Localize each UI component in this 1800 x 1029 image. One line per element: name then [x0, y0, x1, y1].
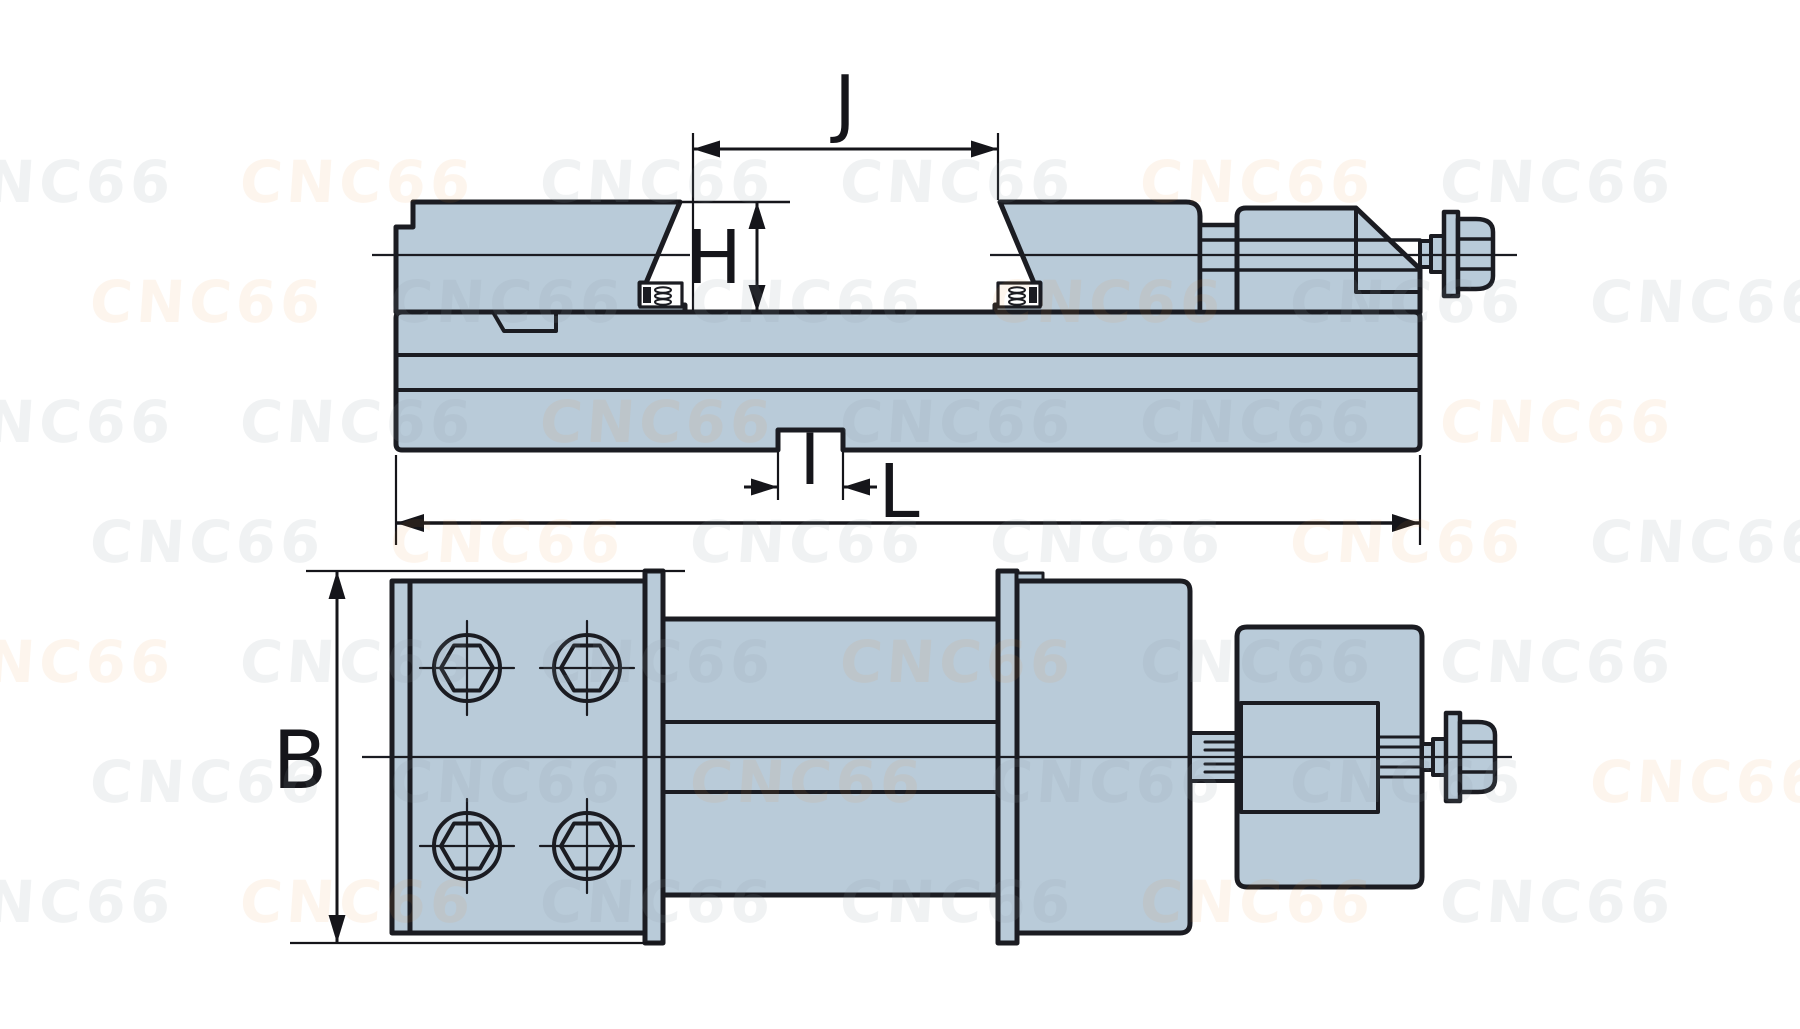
- movable-jaw-clamp-block: [1029, 287, 1037, 303]
- dim-b-arrow-down: [329, 915, 346, 943]
- dim-label-i: I: [800, 419, 821, 501]
- dim-j-arrow-right: [971, 141, 998, 158]
- dim-l-arrow-right: [1392, 514, 1420, 532]
- dim-h-arrow-up: [749, 202, 766, 229]
- fixed-jaw-clamp-block: [643, 287, 651, 303]
- dim-b-arrow-up: [329, 571, 346, 599]
- vise-technical-drawing: J H I L: [0, 0, 1800, 1029]
- vise-drawing-page: J H I L: [0, 0, 1800, 1029]
- dim-i-arrow-left: [751, 479, 778, 496]
- dim-label-j: J: [830, 60, 856, 146]
- dim-label-h: H: [686, 215, 742, 301]
- dim-label-b: B: [273, 714, 328, 807]
- screw-bracket-side: [1237, 208, 1420, 312]
- dim-i-arrow-right: [843, 479, 870, 496]
- dim-h-arrow-down: [749, 285, 766, 312]
- dim-j-arrow-left: [693, 141, 720, 158]
- dim-label-l: L: [878, 449, 919, 535]
- dim-l-arrow-left: [396, 514, 424, 532]
- side-view: [396, 202, 1493, 450]
